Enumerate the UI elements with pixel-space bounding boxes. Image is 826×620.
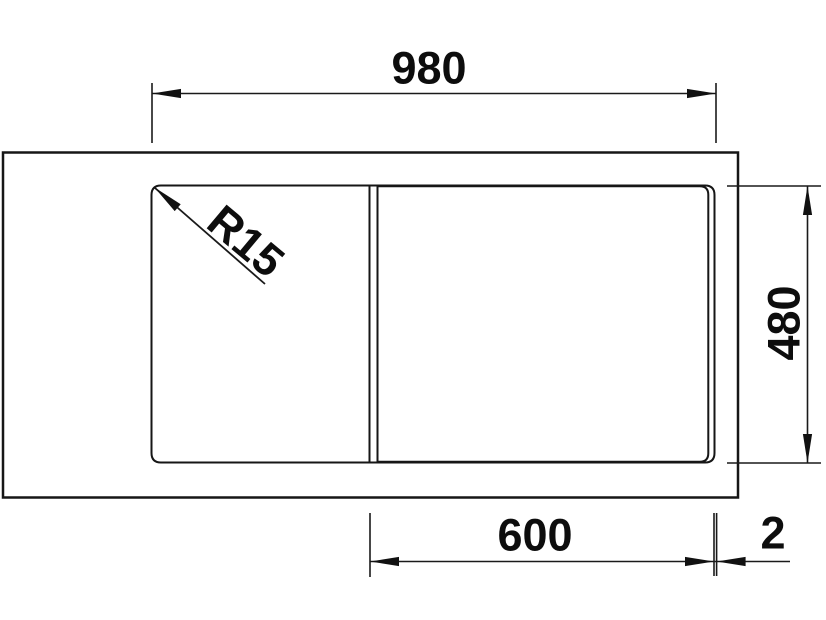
arrowhead-left-icon: [370, 557, 399, 566]
dimension-label-2: 2: [760, 508, 785, 559]
leader-arrowhead-icon: [154, 187, 180, 211]
technical-drawing-page: 980 480 600 2 R15: [0, 0, 826, 620]
dimension-total-width: 980: [152, 43, 716, 144]
arrowhead-down-icon: [803, 434, 812, 463]
dimension-bowl-width: 600 2: [370, 508, 790, 578]
bowl-outline: [378, 186, 709, 462]
dimension-total-depth: 480: [727, 186, 821, 463]
dimension-label-600: 600: [497, 510, 572, 561]
dimension-label-980: 980: [391, 43, 466, 94]
sink-cutout-drawing-canvas: 980 480 600 2 R15: [0, 0, 826, 620]
arrowhead-up-icon: [803, 186, 812, 215]
arrowhead-offset-icon: [717, 557, 746, 566]
radius-callout: R15: [154, 187, 294, 287]
drawing-geometry: [3, 153, 738, 498]
arrowhead-left-icon: [152, 89, 181, 98]
radius-label-r15: R15: [198, 195, 294, 287]
arrowhead-right-icon: [687, 89, 716, 98]
arrowhead-right-icon: [685, 557, 714, 566]
dimension-label-480: 480: [759, 285, 810, 360]
